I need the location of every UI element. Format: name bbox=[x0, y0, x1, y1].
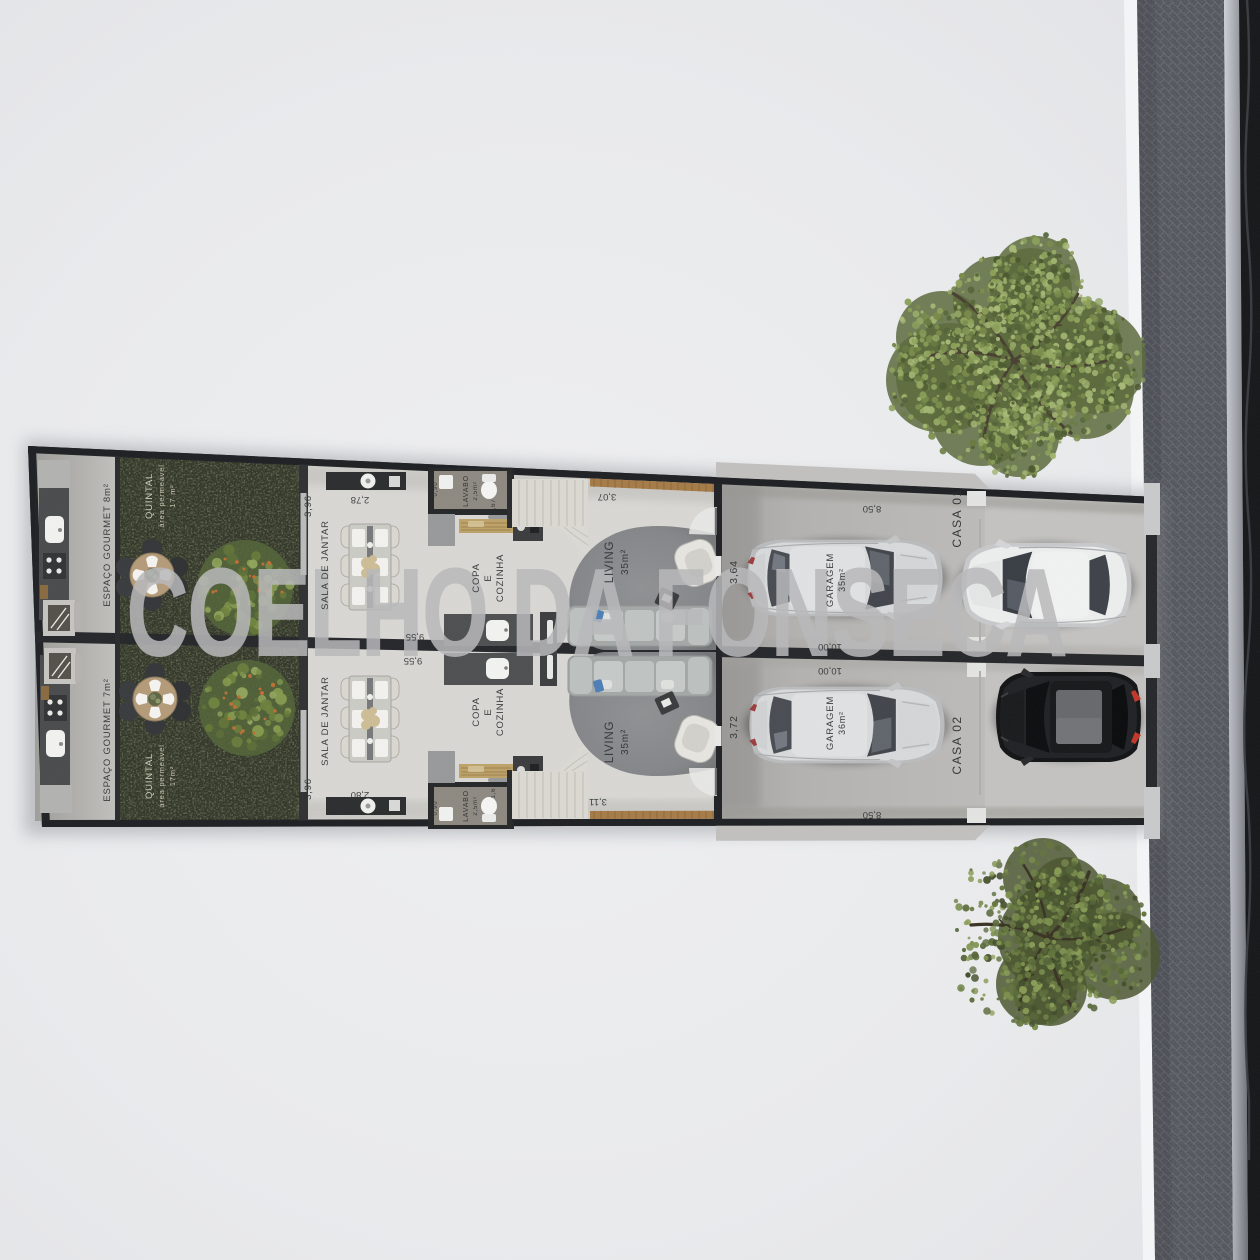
svg-text:2,5m²: 2,5m² bbox=[473, 796, 479, 815]
svg-text:COELHO DA FONSECA: COELHO DA FONSECA bbox=[127, 545, 1067, 682]
svg-text:2,5m²: 2,5m² bbox=[473, 481, 479, 500]
svg-text:CASA 01: CASA 01 bbox=[950, 488, 964, 547]
svg-text:3,72: 3,72 bbox=[728, 715, 740, 739]
svg-text:1,67: 1,67 bbox=[491, 499, 497, 514]
svg-text:COPA: COPA bbox=[471, 563, 482, 592]
svg-text:LIVING: LIVING bbox=[604, 721, 616, 764]
svg-text:área permeável: área permeável bbox=[157, 744, 166, 807]
svg-text:GARAGEM: GARAGEM bbox=[825, 553, 836, 607]
svg-text:SALA DE JANTAR: SALA DE JANTAR bbox=[320, 520, 331, 610]
svg-text:36m²: 36m² bbox=[837, 711, 847, 735]
svg-text:17m²: 17m² bbox=[168, 766, 177, 786]
svg-text:3,11: 3,11 bbox=[589, 796, 607, 807]
svg-text:LIVING: LIVING bbox=[604, 541, 616, 584]
svg-text:8,50: 8,50 bbox=[863, 503, 882, 514]
svg-text:3,64: 3,64 bbox=[728, 560, 740, 584]
svg-text:3,96: 3,96 bbox=[303, 778, 314, 800]
svg-text:35m²: 35m² bbox=[620, 549, 631, 575]
svg-text:LAVABO: LAVABO bbox=[463, 475, 470, 507]
svg-text:ESPAÇO GOURMET 7m²: ESPAÇO GOURMET 7m² bbox=[102, 678, 113, 801]
svg-text:GARAGEM: GARAGEM bbox=[825, 696, 836, 750]
svg-text:ESPAÇO GOURMET 8m²: ESPAÇO GOURMET 8m² bbox=[102, 483, 113, 606]
svg-text:8,50: 8,50 bbox=[863, 809, 882, 820]
svg-text:2,78: 2,78 bbox=[351, 494, 370, 505]
svg-text:SALA DE JANTAR: SALA DE JANTAR bbox=[320, 676, 331, 766]
svg-text:COZINHA: COZINHA bbox=[495, 688, 506, 736]
svg-text:3,96: 3,96 bbox=[303, 495, 314, 517]
svg-text:E: E bbox=[483, 574, 494, 581]
svg-text:0,90: 0,90 bbox=[433, 482, 439, 497]
svg-text:COZINHA: COZINHA bbox=[495, 554, 506, 602]
svg-text:9,55: 9,55 bbox=[404, 655, 423, 666]
svg-text:35m²: 35m² bbox=[837, 568, 847, 592]
svg-text:COPA: COPA bbox=[471, 697, 482, 726]
svg-text:2,80: 2,80 bbox=[351, 789, 370, 800]
svg-text:1,67: 1,67 bbox=[491, 784, 497, 799]
svg-text:9,55: 9,55 bbox=[406, 631, 425, 642]
svg-text:3,07: 3,07 bbox=[598, 491, 617, 502]
svg-text:QUINTAL: QUINTAL bbox=[144, 473, 155, 519]
svg-text:17 m²: 17 m² bbox=[168, 484, 177, 507]
svg-text:10,00: 10,00 bbox=[818, 665, 842, 676]
svg-text:10,00: 10,00 bbox=[818, 641, 842, 652]
svg-text:0,90: 0,90 bbox=[433, 801, 439, 816]
svg-text:área permeável: área permeável bbox=[157, 464, 166, 527]
svg-text:LAVABO: LAVABO bbox=[463, 790, 470, 822]
svg-text:QUINTAL: QUINTAL bbox=[144, 753, 155, 799]
svg-text:CASA 02: CASA 02 bbox=[950, 715, 964, 774]
svg-text:35m²: 35m² bbox=[620, 729, 631, 755]
svg-text:E: E bbox=[483, 708, 494, 715]
